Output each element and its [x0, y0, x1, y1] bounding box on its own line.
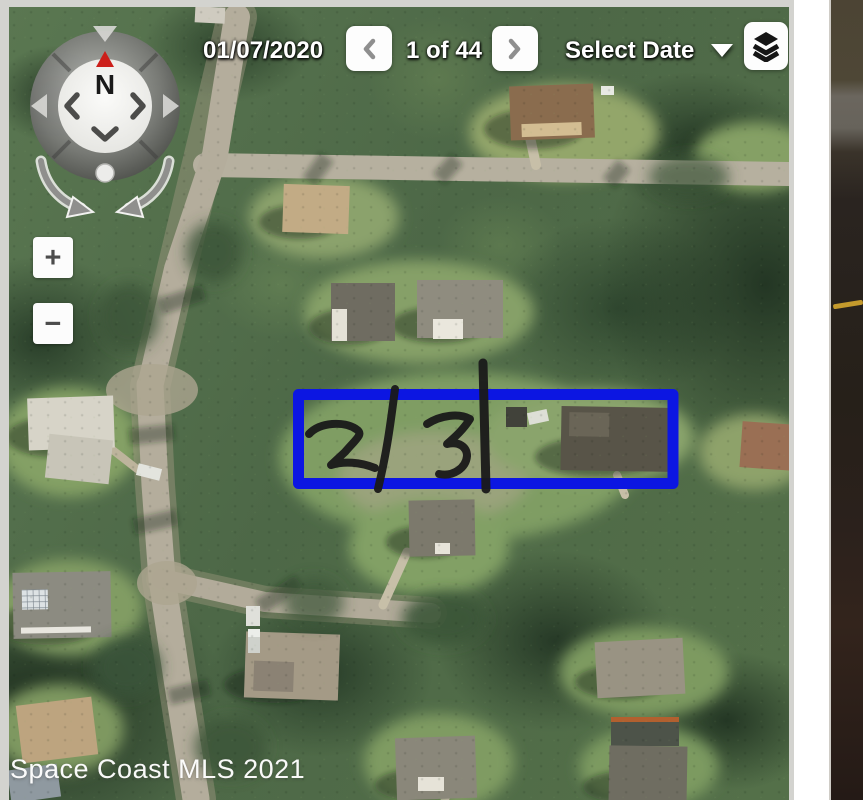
solar-panels [22, 589, 48, 609]
house-detail [433, 319, 463, 339]
intersection-pad [106, 364, 198, 416]
mls-photo-viewer: Space Coast MLS 2021 01/07/2020 1 of 44 … [0, 0, 863, 800]
previous-date-button[interactable] [346, 26, 392, 71]
adjacent-photo-edge[interactable] [829, 0, 863, 800]
truck-cab [248, 629, 260, 637]
house-detail [569, 412, 609, 437]
house-detail [332, 309, 347, 341]
chevron-right-icon [507, 38, 523, 60]
imagery-date: 01/07/2020 [203, 37, 323, 65]
layers-icon [752, 30, 780, 62]
pool-enclosure [611, 720, 679, 746]
caret-down-icon[interactable] [711, 44, 733, 57]
house-detail [21, 626, 91, 633]
select-date-dropdown[interactable]: Select Date [565, 37, 694, 65]
next-date-button[interactable] [492, 26, 538, 71]
house [282, 184, 350, 234]
house-detail [418, 777, 444, 791]
shed [506, 407, 527, 427]
zoom-in-button[interactable]: + [33, 237, 73, 278]
map-frame: Space Coast MLS 2021 01/07/2020 1 of 44 … [0, 0, 794, 800]
car [246, 606, 260, 626]
house-detail [521, 122, 581, 137]
house-detail [253, 661, 294, 692]
zoom-out-button[interactable]: − [33, 303, 73, 344]
watermark: Space Coast MLS 2021 [10, 754, 305, 785]
north-label: N [95, 69, 115, 100]
chevron-left-icon [361, 38, 377, 60]
layers-button[interactable] [744, 22, 788, 70]
house-detail [45, 434, 113, 484]
compass-reset-dot[interactable] [96, 164, 114, 182]
road-marking-detail [833, 300, 863, 310]
compass-control[interactable]: N [11, 9, 201, 221]
panel-gap [794, 0, 829, 800]
aerial-imagery-canvas[interactable]: Space Coast MLS 2021 01/07/2020 1 of 44 … [9, 7, 789, 800]
house-detail [435, 543, 450, 554]
house [739, 421, 789, 471]
house [609, 745, 688, 800]
house [595, 638, 686, 699]
pool-enclosure-beam [611, 717, 679, 722]
photo-position: 1 of 44 [406, 37, 482, 65]
intersection-pad [137, 561, 197, 605]
car [601, 86, 614, 95]
